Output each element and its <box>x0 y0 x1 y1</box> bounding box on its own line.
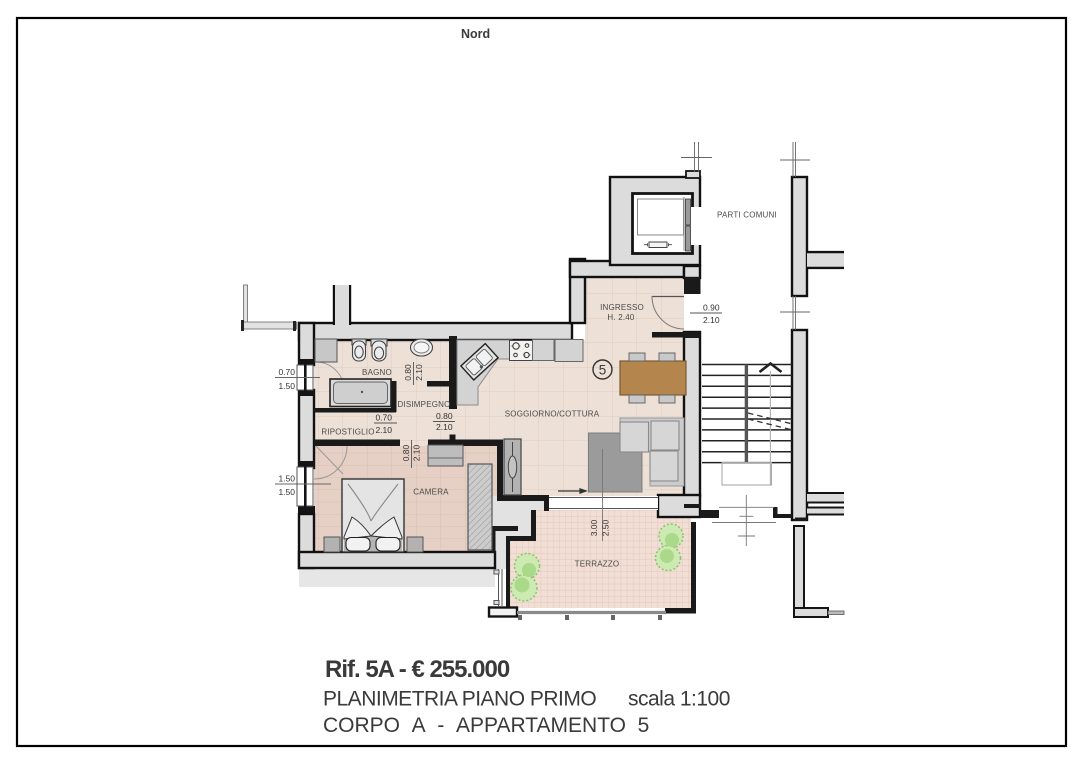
svg-text:CORPO A - APPARTAMENTO 5: CORPO A - APPARTAMENTO 5 <box>323 714 649 737</box>
svg-text:INGRESSO: INGRESSO <box>600 303 644 312</box>
svg-text:BAGNO: BAGNO <box>362 368 392 377</box>
svg-text:2.10: 2.10 <box>414 364 424 381</box>
svg-text:SOGGIORNO/COTTURA: SOGGIORNO/COTTURA <box>505 410 600 419</box>
svg-text:scala 1:100: scala 1:100 <box>628 688 730 711</box>
svg-text:Rif. 5A - € 255.000: Rif. 5A - € 255.000 <box>325 656 510 683</box>
svg-text:Nord: Nord <box>461 27 490 41</box>
svg-text:3.00: 3.00 <box>589 519 599 536</box>
svg-text:TERRAZZO: TERRAZZO <box>575 560 620 569</box>
svg-text:DISIMPEGNO: DISIMPEGNO <box>397 400 450 409</box>
svg-text:2.10: 2.10 <box>412 444 422 461</box>
svg-text:0.80: 0.80 <box>401 444 411 461</box>
svg-text:0.80: 0.80 <box>436 411 453 421</box>
svg-text:0.90: 0.90 <box>703 303 720 313</box>
svg-text:1.50: 1.50 <box>278 487 295 497</box>
svg-text:0.70: 0.70 <box>278 367 295 377</box>
svg-text:2.50: 2.50 <box>601 519 611 536</box>
svg-text:CAMERA: CAMERA <box>413 488 449 497</box>
svg-text:PLANIMETRIA PIANO PRIMO: PLANIMETRIA PIANO PRIMO <box>323 688 596 711</box>
svg-text:2.10: 2.10 <box>436 422 453 432</box>
svg-text:1.50: 1.50 <box>278 381 295 391</box>
svg-text:2.10: 2.10 <box>375 425 392 435</box>
svg-text:0.70: 0.70 <box>375 413 392 423</box>
svg-text:0.80: 0.80 <box>403 364 413 381</box>
svg-text:1.50: 1.50 <box>278 474 295 484</box>
svg-text:PARTI COMUNI: PARTI COMUNI <box>717 211 777 220</box>
svg-text:5: 5 <box>599 363 607 378</box>
svg-text:2.10: 2.10 <box>703 315 720 325</box>
svg-text:RIPOSTIGLIO: RIPOSTIGLIO <box>321 428 374 437</box>
svg-text:H. 2.40: H. 2.40 <box>607 313 635 322</box>
